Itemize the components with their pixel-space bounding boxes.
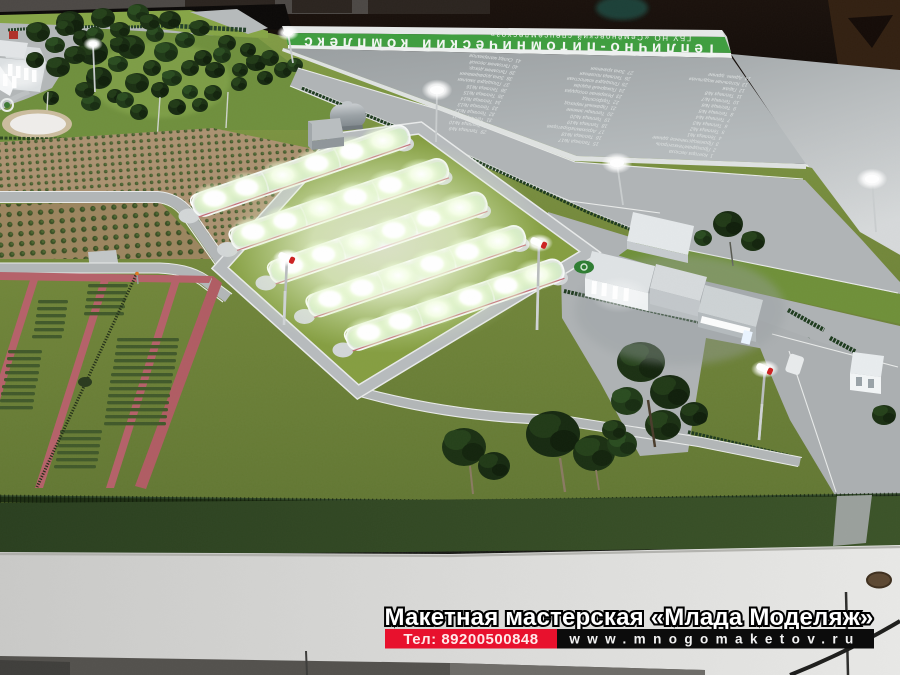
svg-text:www.mnogomaketov.ru: www.mnogomaketov.ru (568, 632, 860, 647)
svg-text:Макетная мастерская «Млада Мод: Макетная мастерская «Млада Моделяж» (385, 604, 874, 631)
svg-text:Тел: 89200500848: Тел: 89200500848 (403, 631, 538, 648)
